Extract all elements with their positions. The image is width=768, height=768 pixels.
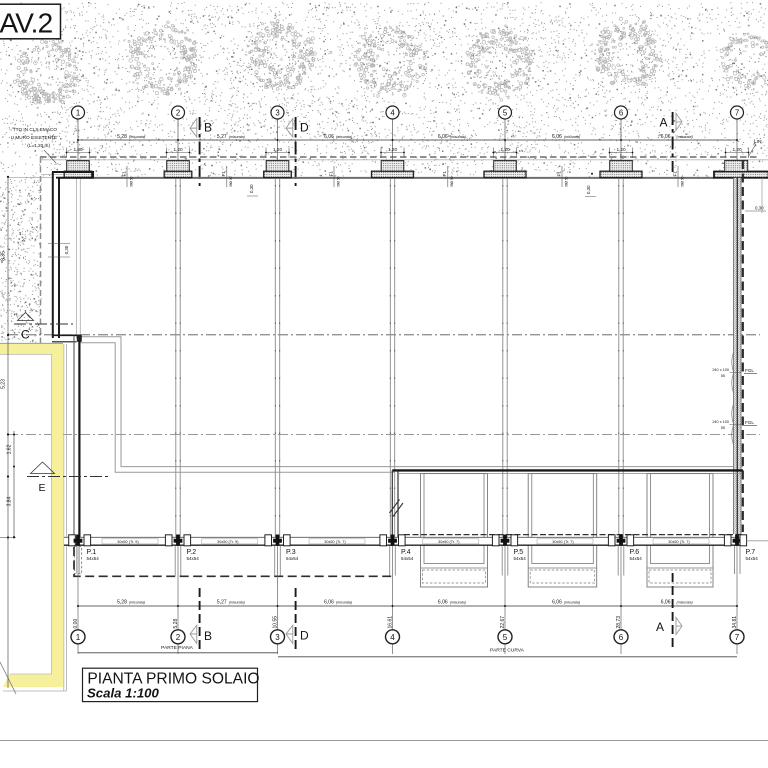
svg-text:1: 1 <box>76 108 80 117</box>
svg-text:6,06: 6,06 <box>661 600 671 606</box>
svg-text:30x50 (Tr. 7): 30x50 (Tr. 7) <box>438 540 460 544</box>
svg-text:3: 3 <box>275 108 279 117</box>
svg-text:55: 55 <box>721 426 725 430</box>
svg-text:34,81: 34,81 <box>732 616 738 629</box>
svg-text:(misurata): (misurata) <box>129 135 145 139</box>
svg-text:A: A <box>660 116 668 130</box>
svg-text:LIN: LIN <box>754 139 762 145</box>
svg-text:4: 4 <box>390 633 395 642</box>
svg-text:1,20: 1,20 <box>388 147 398 152</box>
svg-text:22,67: 22,67 <box>500 616 506 629</box>
svg-text:C: C <box>21 328 30 342</box>
svg-text:D: D <box>300 121 309 135</box>
svg-text:F1: F1 <box>221 171 227 177</box>
svg-text:4: 4 <box>390 108 395 117</box>
svg-text:1,20: 1,20 <box>273 147 283 152</box>
svg-text:B: B <box>204 629 212 643</box>
svg-text:5,27: 5,27 <box>217 600 227 606</box>
svg-text:(L=1,20 m): (L=1,20 m) <box>27 143 50 148</box>
svg-text:(misurata): (misurata) <box>450 601 466 605</box>
svg-text:7: 7 <box>735 108 739 117</box>
svg-text:240 x 100: 240 x 100 <box>712 420 729 424</box>
svg-text:F1: F1 <box>122 171 128 177</box>
svg-text:FGL: FGL <box>745 368 754 373</box>
svg-text:38Ø 50: 38Ø 50 <box>681 176 685 187</box>
svg-text:6,06: 6,06 <box>552 600 562 606</box>
svg-text:1,20: 1,20 <box>73 147 83 152</box>
svg-text:2: 2 <box>176 108 180 117</box>
svg-text:3: 3 <box>275 633 280 642</box>
svg-text:5,28: 5,28 <box>117 134 127 140</box>
svg-text:0,30: 0,30 <box>755 205 764 210</box>
svg-text:(misurata): (misurata) <box>336 135 352 139</box>
svg-text:30x50 (Tr. 9): 30x50 (Tr. 9) <box>117 540 139 544</box>
svg-text:30x50 (Tr. 7): 30x50 (Tr. 7) <box>668 540 690 544</box>
svg-text:5,28: 5,28 <box>173 619 179 629</box>
svg-text:(misurata): (misurata) <box>564 601 580 605</box>
svg-text:5,28: 5,28 <box>117 600 127 606</box>
svg-text:10,55: 10,55 <box>272 616 278 629</box>
svg-text:1,20: 1,20 <box>732 147 742 152</box>
svg-text:2: 2 <box>176 633 181 642</box>
svg-text:38Ø 50: 38Ø 50 <box>565 176 569 187</box>
svg-text:U MURO ESISTENTE: U MURO ESISTENTE <box>11 135 57 140</box>
svg-text:E: E <box>39 482 46 494</box>
svg-text:TTO IN CLS EMACO: TTO IN CLS EMACO <box>13 127 58 132</box>
svg-text:D: D <box>300 629 309 643</box>
svg-text:6,06: 6,06 <box>661 134 671 140</box>
svg-text:5,27: 5,27 <box>217 134 227 140</box>
svg-text:6,06: 6,06 <box>552 134 562 140</box>
svg-text:6,06: 6,06 <box>438 134 448 140</box>
svg-text:F1: F1 <box>329 171 335 177</box>
svg-text:38Ø 50: 38Ø 50 <box>130 176 134 187</box>
svg-text:30x50 (Tr. 9): 30x50 (Tr. 9) <box>217 540 239 544</box>
svg-text:AV.2: AV.2 <box>0 7 53 38</box>
svg-text:30x50 (Tr. 7): 30x50 (Tr. 7) <box>552 540 574 544</box>
svg-text:0,30: 0,30 <box>249 184 254 193</box>
svg-text:55: 55 <box>721 374 725 378</box>
svg-text:38Ø 50: 38Ø 50 <box>337 176 341 187</box>
svg-text:30x50 (Tr. 7): 30x50 (Tr. 7) <box>324 540 346 544</box>
svg-text:7: 7 <box>735 633 740 642</box>
svg-text:54x54: 54x54 <box>514 556 527 561</box>
svg-text:A: A <box>656 620 664 634</box>
svg-text:(misurata): (misurata) <box>129 601 145 605</box>
svg-text:1,20: 1,20 <box>173 147 183 152</box>
svg-text:54x54: 54x54 <box>401 556 414 561</box>
svg-text:6,06: 6,06 <box>438 600 448 606</box>
svg-text:54x54: 54x54 <box>630 556 643 561</box>
svg-text:PARTE CURVA: PARTE CURVA <box>490 648 525 654</box>
svg-text:5: 5 <box>503 633 508 642</box>
svg-text:54x54: 54x54 <box>187 556 200 561</box>
svg-text:6: 6 <box>619 633 624 642</box>
svg-text:240 x 100: 240 x 100 <box>712 368 729 372</box>
svg-text:(misurata): (misurata) <box>677 135 693 139</box>
svg-text:6,06: 6,06 <box>324 600 334 606</box>
svg-text:1,20: 1,20 <box>500 147 510 152</box>
svg-text:54x54: 54x54 <box>286 556 299 561</box>
svg-text:(misurata): (misurata) <box>336 601 352 605</box>
svg-text:F1: F1 <box>442 171 448 177</box>
svg-text:1,62: 1,62 <box>7 444 13 454</box>
svg-text:6,06: 6,06 <box>324 134 334 140</box>
svg-text:3,84: 3,84 <box>7 496 13 506</box>
svg-text:1: 1 <box>76 633 81 642</box>
svg-text:0,30: 0,30 <box>586 185 591 194</box>
svg-text:38Ø 50: 38Ø 50 <box>229 176 233 187</box>
svg-text:(misurata): (misurata) <box>677 601 693 605</box>
svg-text:FGL: FGL <box>745 420 754 425</box>
svg-text:16,61: 16,61 <box>387 616 393 629</box>
svg-text:(misurata): (misurata) <box>564 135 580 139</box>
svg-text:1,20: 1,20 <box>616 147 626 152</box>
svg-text:5: 5 <box>503 108 508 117</box>
svg-text:F1: F1 <box>673 171 679 177</box>
svg-text:38Ø 50: 38Ø 50 <box>450 176 454 187</box>
svg-text:54x54: 54x54 <box>87 556 100 561</box>
svg-text:5,23: 5,23 <box>1 379 7 389</box>
svg-text:(misurata): (misurata) <box>229 135 245 139</box>
svg-text:Scala 1:100: Scala 1:100 <box>87 685 160 700</box>
svg-text:0,30: 0,30 <box>64 245 69 254</box>
svg-text:(misurata): (misurata) <box>229 601 245 605</box>
svg-text:B: B <box>204 121 212 135</box>
svg-text:54x54: 54x54 <box>746 556 759 561</box>
svg-text:F1: F1 <box>557 171 563 177</box>
svg-text:6: 6 <box>619 108 623 117</box>
svg-text:PARTE PIANA: PARTE PIANA <box>161 645 194 651</box>
svg-text:28,73: 28,73 <box>616 616 622 629</box>
svg-text:8,35: 8,35 <box>1 251 7 261</box>
svg-text:(misurata): (misurata) <box>450 135 466 139</box>
svg-text:0,00: 0,00 <box>73 619 79 629</box>
